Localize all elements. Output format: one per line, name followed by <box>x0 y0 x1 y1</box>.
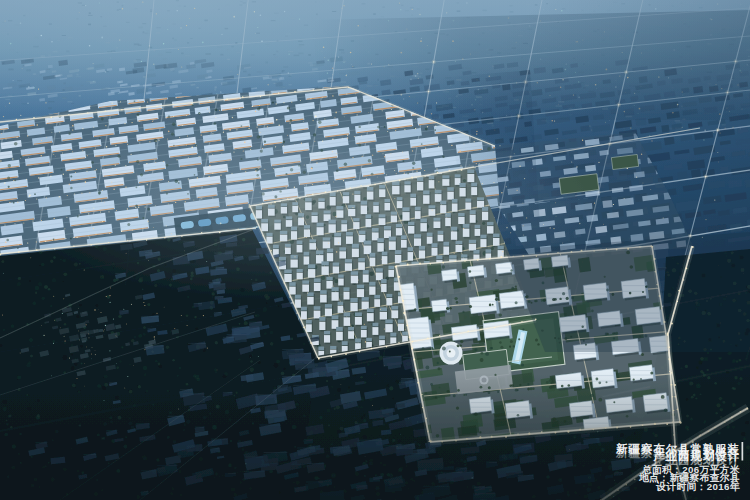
svg-text:设计时间：2016年: 设计时间：2016年 <box>655 481 740 492</box>
svg-text:产业园规划设计: 产业园规划设计 <box>652 449 740 462</box>
